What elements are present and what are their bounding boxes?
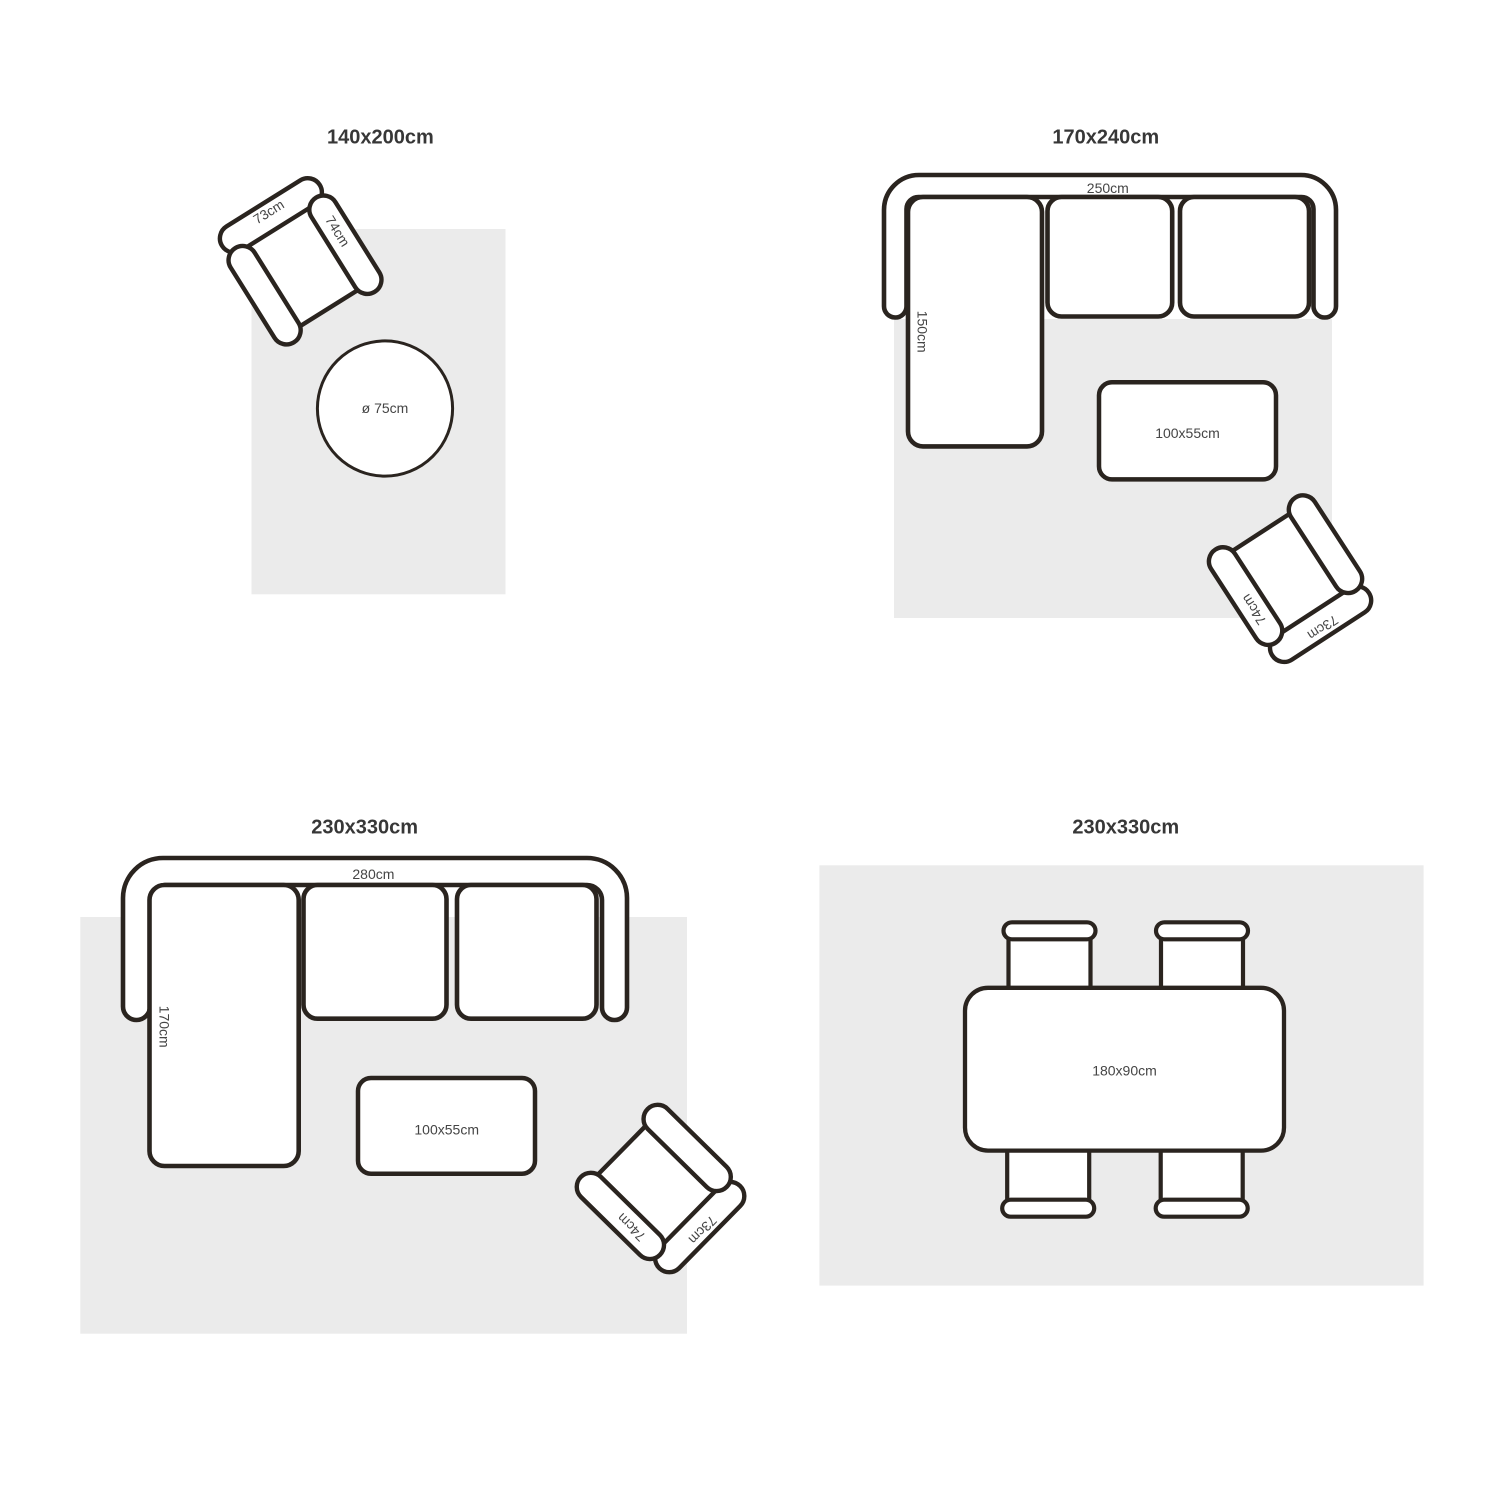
svg-text:170cm: 170cm [156,1006,172,1048]
svg-text:230x330cm: 230x330cm [311,817,418,839]
svg-text:280cm: 280cm [352,866,394,882]
svg-text:170x240cm: 170x240cm [1052,127,1159,149]
svg-text:150cm: 150cm [915,311,931,353]
svg-text:140x200cm: 140x200cm [327,127,434,149]
svg-text:100x55cm: 100x55cm [414,1122,479,1138]
svg-text:100x55cm: 100x55cm [1155,425,1220,441]
svg-text:ø 75cm: ø 75cm [362,400,409,416]
svg-text:230x330cm: 230x330cm [1072,817,1179,839]
svg-text:250cm: 250cm [1087,180,1129,196]
svg-text:180x90cm: 180x90cm [1092,1063,1157,1079]
